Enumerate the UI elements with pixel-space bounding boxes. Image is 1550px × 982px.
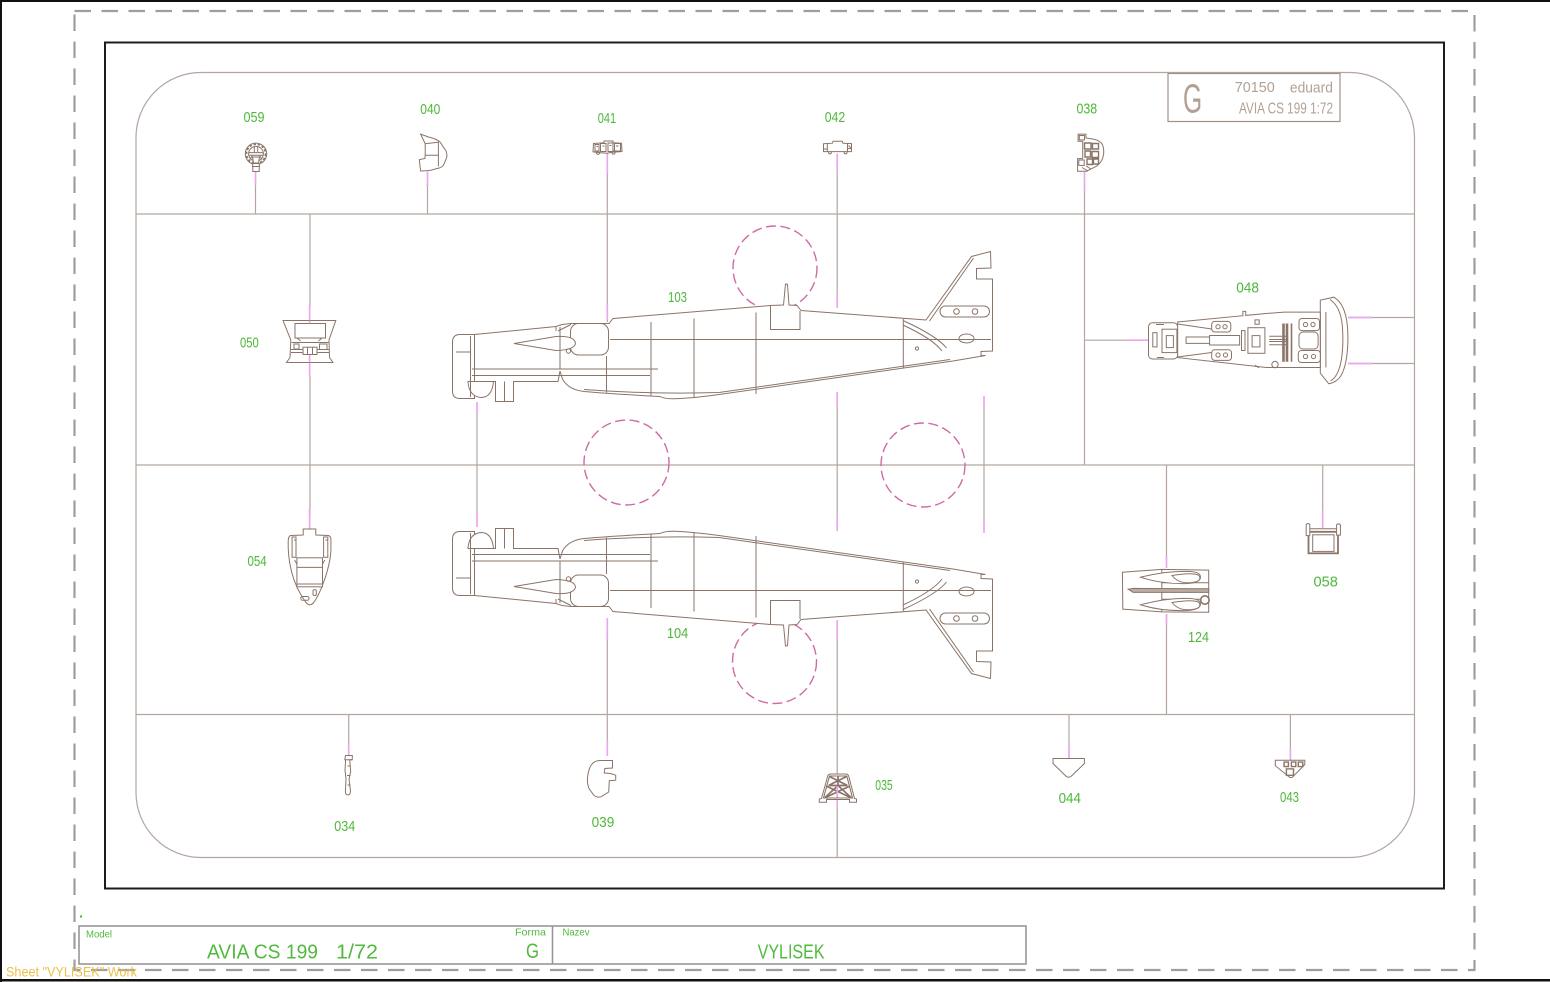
svg-text:039: 039 xyxy=(592,814,615,831)
svg-text:104: 104 xyxy=(667,625,688,642)
svg-text:VYLISEK: VYLISEK xyxy=(758,942,826,964)
svg-text:041: 041 xyxy=(598,110,616,127)
svg-text:040: 040 xyxy=(420,101,440,118)
svg-text:042: 042 xyxy=(825,109,846,126)
svg-text:054: 054 xyxy=(248,553,267,570)
svg-text:eduard: eduard xyxy=(1290,80,1333,97)
svg-text:038: 038 xyxy=(1077,101,1098,118)
svg-text:Sheet "VYLISEK" Work: Sheet "VYLISEK" Work xyxy=(6,964,138,980)
svg-text:G: G xyxy=(526,940,539,963)
svg-text:044: 044 xyxy=(1059,790,1081,807)
svg-text:70150: 70150 xyxy=(1235,79,1275,96)
svg-text:059: 059 xyxy=(244,109,265,126)
svg-text:050: 050 xyxy=(240,334,259,351)
svg-text:AVIA CS 199: AVIA CS 199 xyxy=(207,941,318,963)
svg-text:058: 058 xyxy=(1314,574,1338,591)
svg-text:048: 048 xyxy=(1236,280,1259,297)
svg-text:043: 043 xyxy=(1280,789,1299,806)
svg-text:103: 103 xyxy=(668,289,687,306)
svg-text:AVIA CS 199 1:72: AVIA CS 199 1:72 xyxy=(1239,100,1333,117)
svg-text:034: 034 xyxy=(334,818,355,835)
svg-text:124: 124 xyxy=(1188,629,1209,646)
svg-text:Nazev: Nazev xyxy=(563,927,591,939)
svg-text:1/72: 1/72 xyxy=(336,941,378,963)
svg-text:Forma: Forma xyxy=(515,927,546,939)
svg-text:035: 035 xyxy=(875,777,892,794)
svg-text:Model: Model xyxy=(86,929,112,941)
svg-text:G: G xyxy=(1183,76,1202,122)
